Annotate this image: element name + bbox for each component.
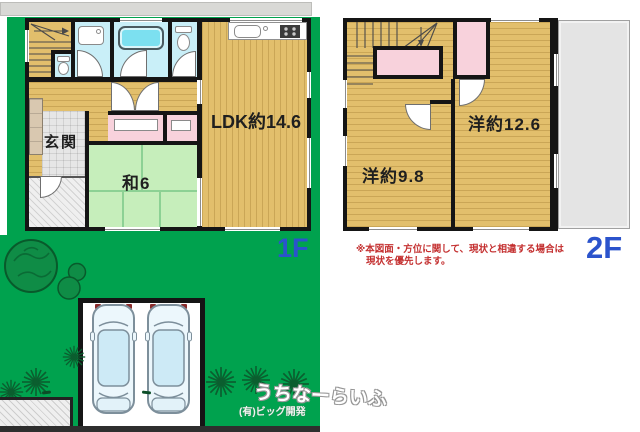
east-room-label: 洋約12.6 [468, 110, 541, 135]
kitchen-faucet-icon [263, 26, 268, 31]
ground-border [0, 426, 320, 432]
toilet2-bowl-icon [58, 62, 69, 75]
car-icon [145, 302, 192, 416]
closet-2f-a [377, 50, 439, 75]
disclaimer-line2: 現状を優先します。 [366, 253, 451, 267]
toilet-tank-icon [175, 26, 192, 33]
road-strip [0, 2, 312, 16]
toilet-bowl-icon [177, 34, 190, 51]
ldk-label: LDK約14.6 [211, 108, 301, 134]
stove-icon [280, 25, 300, 38]
floor1-tag: 1F [277, 233, 309, 264]
company-name: (有)ビッグ開発 [239, 403, 306, 418]
shoe-cabinet-icon [29, 98, 43, 155]
faucet-icon [96, 29, 101, 34]
balcony [558, 20, 630, 229]
floor2-tag: 2F [586, 230, 622, 266]
bush-icon [205, 366, 237, 398]
bathtub-icon [118, 26, 164, 50]
genkan-label: 玄関 [44, 131, 78, 152]
futon-shelf-icon [114, 119, 158, 131]
closet-shelf-icon [171, 120, 191, 131]
floorplan-page: 玄関 和6 LDK約14.6 洋約9.8 洋約12.6 1F 2F ※本図面・方… [0, 0, 640, 432]
closet-2f-b [457, 22, 486, 75]
west-room-label: 洋約9.8 [362, 162, 425, 187]
tree-icon [0, 233, 110, 313]
kitchen-sink-icon [234, 25, 261, 38]
pavement-corner [0, 397, 73, 427]
car-icon [90, 302, 137, 416]
bush-icon [62, 345, 86, 369]
tatami-room-label: 和6 [122, 169, 150, 194]
